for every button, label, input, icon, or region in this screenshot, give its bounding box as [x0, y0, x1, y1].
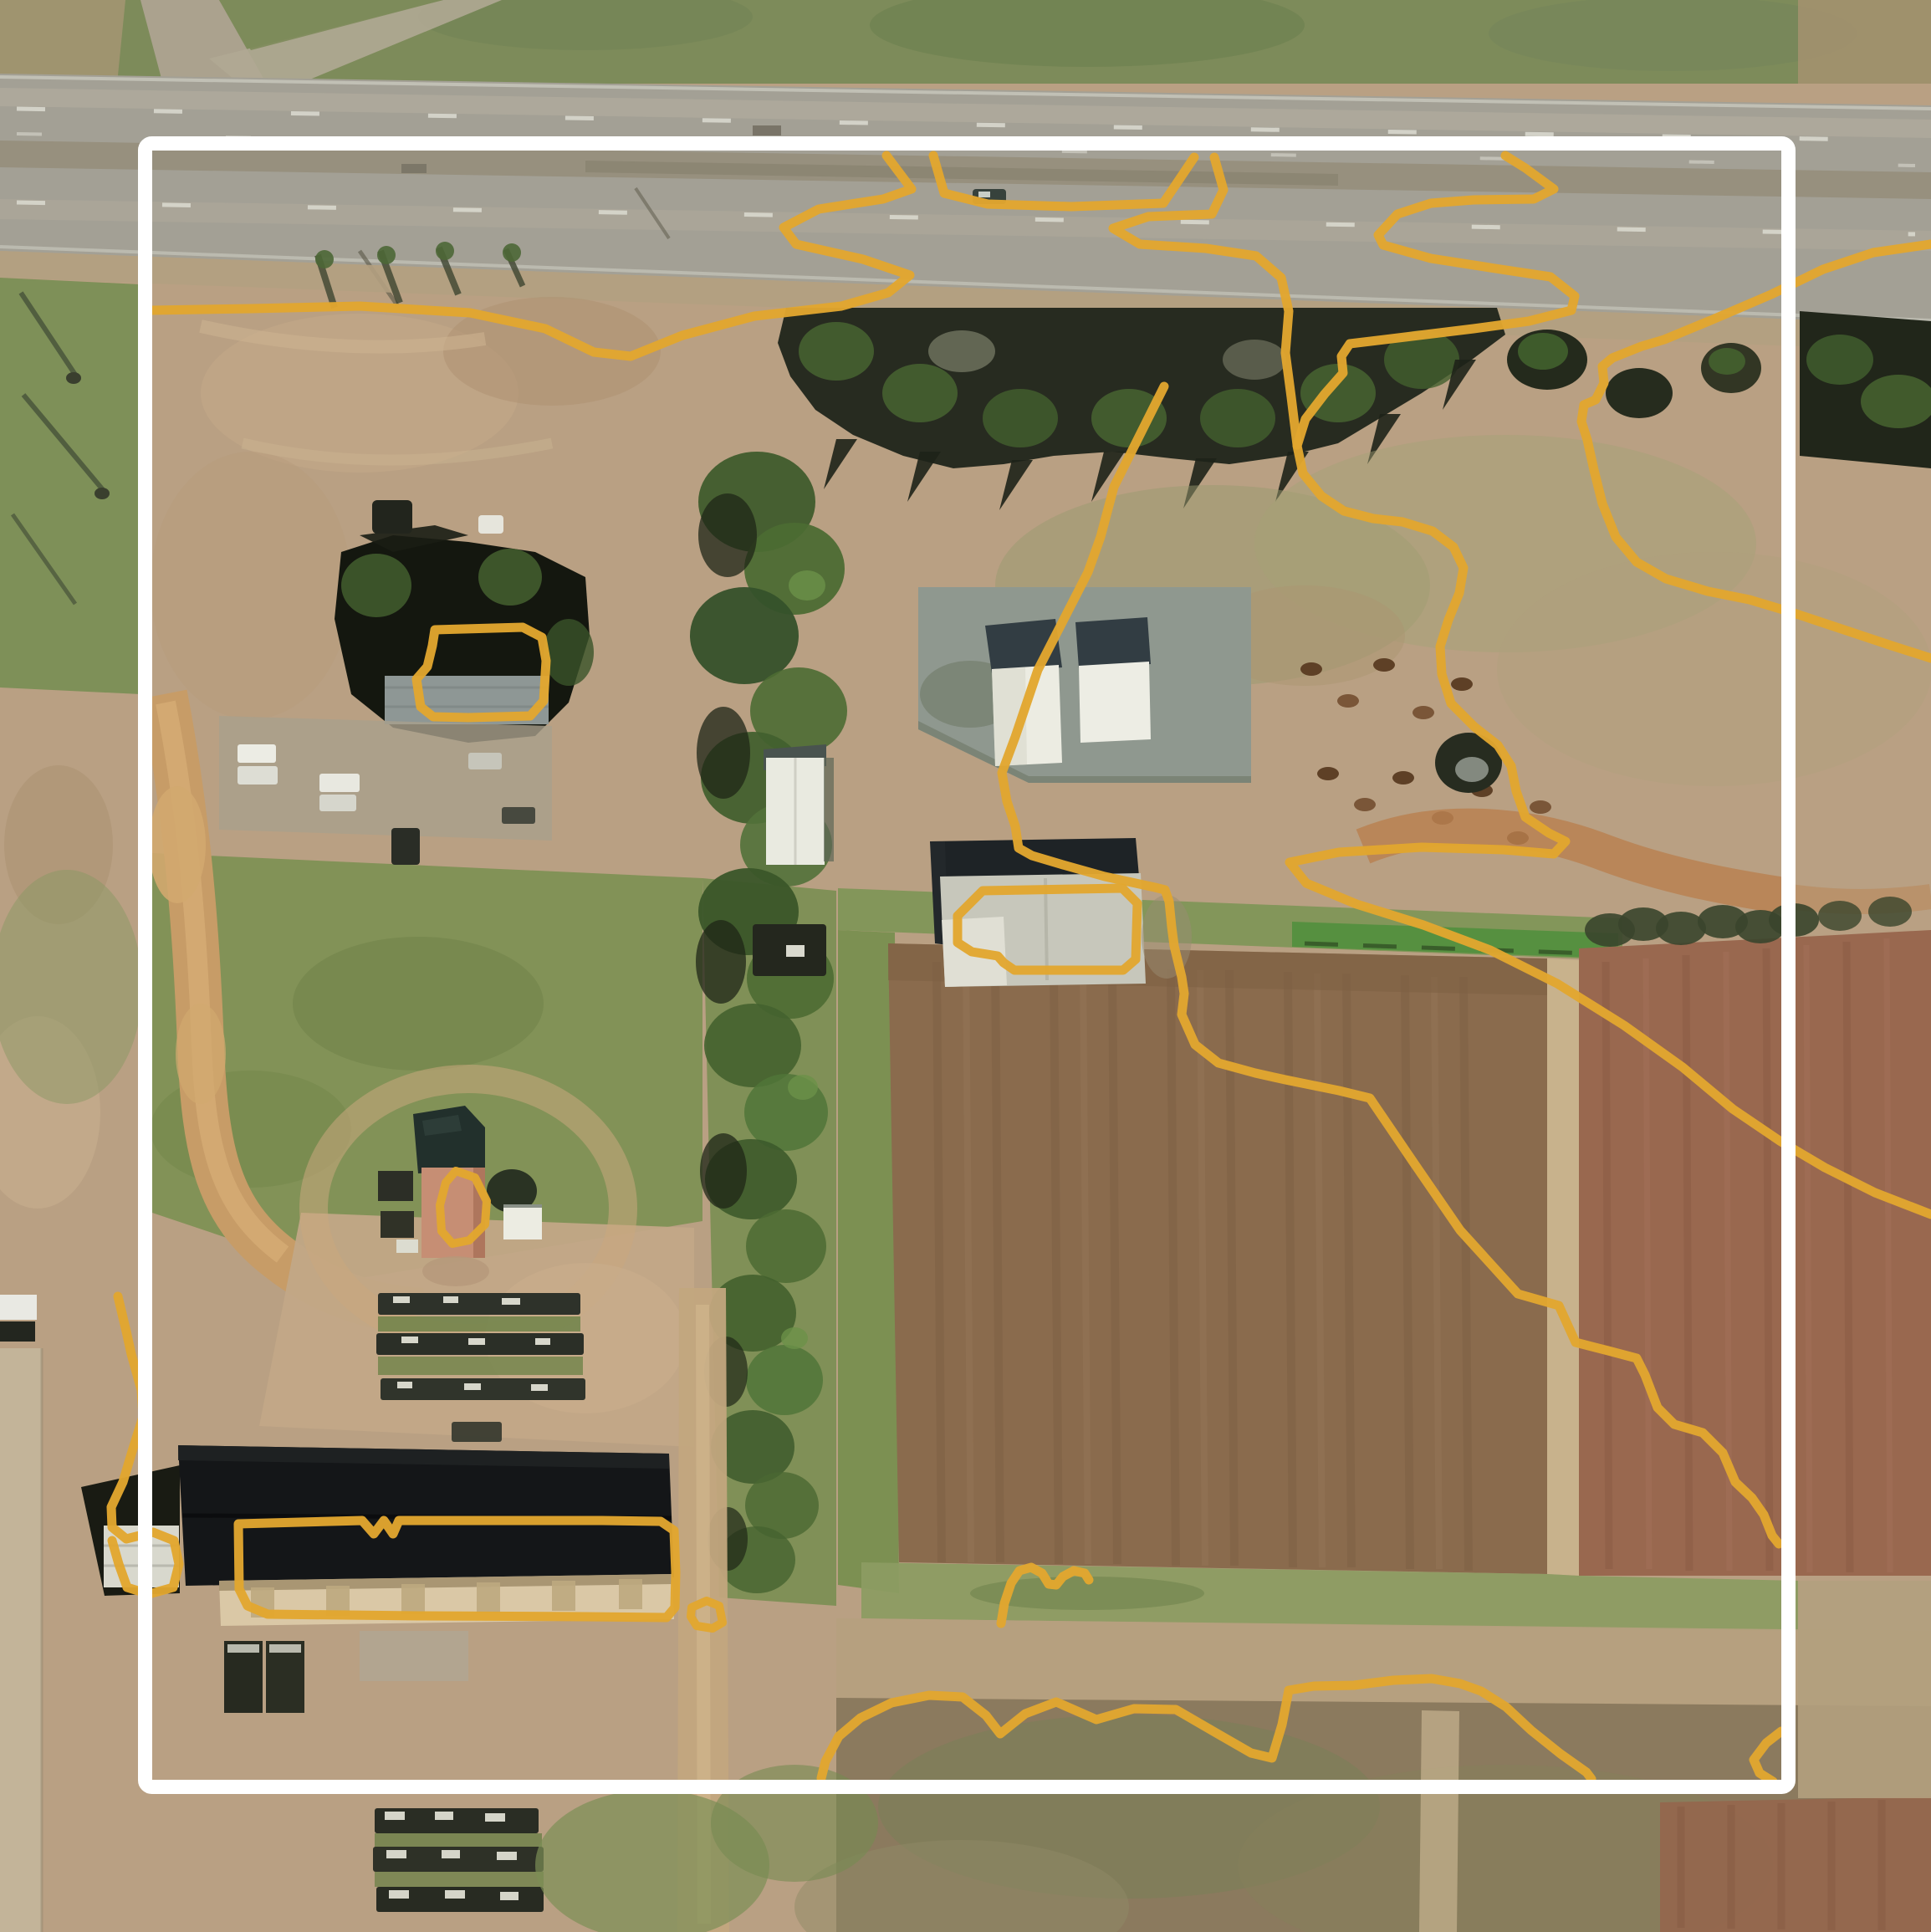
cattle — [1354, 798, 1376, 811]
clay-track — [1790, 897, 1931, 902]
red-field-stripe — [1806, 945, 1810, 1572]
cattle — [1373, 658, 1395, 672]
pole-base — [95, 488, 110, 499]
tree-column — [746, 1209, 826, 1283]
parked-car — [319, 795, 356, 811]
field-stripe — [1464, 977, 1469, 1571]
cattle — [1392, 771, 1414, 785]
white-shed — [503, 1208, 542, 1239]
dirt-spot — [422, 1256, 489, 1286]
tree-column-shadow — [697, 707, 750, 799]
tree-on-building — [478, 549, 542, 606]
tree-column-highlight — [781, 1327, 808, 1349]
parked-car — [238, 766, 278, 785]
dirt-top-left — [0, 0, 125, 84]
trailer-glint — [786, 945, 805, 957]
equipment-glint — [535, 1338, 550, 1345]
tan-right-frame-low — [1798, 1581, 1931, 1798]
shed-white-bits — [396, 1239, 418, 1253]
white-vehicle — [478, 515, 503, 534]
equipment-glint — [485, 1813, 505, 1822]
barn-door — [552, 1581, 575, 1611]
tree-column-shadow — [696, 920, 746, 1004]
dark-car — [372, 500, 412, 534]
field-stripe — [1405, 975, 1410, 1569]
tree-column-shadow — [700, 1133, 747, 1209]
dark-trailer — [0, 1321, 35, 1342]
equipment-glint — [445, 1890, 465, 1899]
bush-row — [1656, 912, 1706, 945]
tree-band-green — [799, 322, 874, 381]
barn-b-roof — [1075, 617, 1151, 668]
field-path-strip — [1547, 958, 1579, 1576]
trailer-glint — [269, 1644, 301, 1653]
barn-door — [477, 1582, 500, 1613]
car-on-highway-glint — [978, 192, 990, 197]
tree-band-green — [983, 389, 1058, 447]
red-field-stripe — [1847, 942, 1850, 1572]
roadside-tree — [503, 243, 521, 262]
tree-on-building — [544, 619, 594, 686]
equipment-row — [378, 1293, 580, 1315]
equipment-glint — [497, 1852, 517, 1860]
tree-column — [746, 1345, 823, 1415]
field-stripe — [1288, 972, 1293, 1567]
cattle — [1317, 767, 1339, 780]
cattle — [1300, 662, 1322, 676]
bush-row — [1818, 901, 1862, 931]
field-stripe — [937, 962, 942, 1562]
roadside-tree — [315, 250, 334, 268]
equipment-green-gap — [378, 1357, 583, 1375]
bush-row — [1868, 897, 1912, 927]
barn-door — [619, 1579, 642, 1609]
equipment-green-gap — [378, 1316, 580, 1331]
tree-block-green — [1806, 335, 1873, 385]
equipment-glint — [385, 1812, 405, 1820]
red-field-stripe — [1606, 962, 1609, 1569]
house-roof — [413, 1106, 485, 1173]
field-stripe — [1229, 970, 1234, 1566]
tree-band-gap — [928, 330, 995, 372]
scattered-tree-green — [1518, 333, 1568, 370]
field-stripe — [1346, 974, 1351, 1567]
equipment-glint — [468, 1338, 485, 1345]
cattle — [1530, 800, 1551, 814]
car-smudge — [401, 164, 427, 173]
plowed-field-brown — [888, 943, 1547, 1574]
equipment-glint — [389, 1890, 409, 1899]
equipment-green-gap — [375, 1833, 542, 1847]
equipment-green-gap — [375, 1872, 544, 1887]
equipment-glint — [442, 1850, 460, 1858]
field-stripe — [1054, 965, 1059, 1564]
shed-left — [378, 1171, 413, 1201]
barn-door — [401, 1584, 425, 1614]
red-field-stripe — [1686, 955, 1689, 1571]
grass-cl-dark — [293, 937, 544, 1071]
equipment-glint — [386, 1850, 406, 1858]
equipment-row — [381, 1378, 585, 1400]
dark-bush-center — [1455, 757, 1489, 782]
equipment-glint — [502, 1298, 520, 1305]
equipment-glint — [393, 1296, 410, 1303]
parked-car-dark — [502, 807, 535, 824]
aerial-imagery-canvas — [0, 0, 1931, 1932]
parked-car — [238, 744, 276, 763]
left-road-strip — [0, 1348, 42, 1932]
scattered-tree — [1606, 368, 1673, 418]
tree-column-shadow — [698, 493, 757, 577]
car-smudge — [753, 125, 781, 135]
cattle — [1337, 694, 1359, 708]
equipment-glint — [464, 1383, 481, 1390]
below-band-tan — [836, 1618, 1931, 1706]
equipment-glint — [531, 1384, 548, 1391]
tree-band-green — [882, 364, 958, 422]
yard-mottle — [151, 452, 351, 719]
tree-column — [690, 587, 799, 684]
bottom-red-field — [1660, 1797, 1931, 1932]
pad-below-barn — [360, 1631, 468, 1681]
cattle — [1412, 706, 1434, 719]
tree-column-highlight — [788, 1075, 818, 1100]
grass-left-margin — [0, 278, 140, 694]
parked-car-dark — [391, 828, 420, 865]
field-stripe — [1171, 969, 1176, 1566]
tree-band-green — [1200, 389, 1275, 447]
pole-base — [66, 372, 81, 384]
equipment-glint — [397, 1382, 412, 1388]
tree-column-highlight — [789, 570, 825, 601]
equipment-glint — [401, 1337, 418, 1343]
field-stripe — [1112, 967, 1117, 1564]
dirt-top-right — [1798, 0, 1931, 84]
red-field-stripe — [1887, 938, 1890, 1572]
white-truck — [0, 1295, 37, 1320]
red-field-stripe — [1766, 948, 1770, 1571]
cattle — [1451, 677, 1473, 691]
red-field-stripe — [1646, 958, 1649, 1569]
equipment-glint — [435, 1812, 453, 1820]
pasture-mottle — [1497, 552, 1931, 786]
equipment-glint — [443, 1296, 458, 1303]
dirt-road-patch — [149, 786, 206, 903]
shed-left — [381, 1211, 414, 1238]
field-stripe — [995, 963, 1000, 1562]
dirt-road-patch — [176, 1004, 226, 1104]
roadside-tree — [436, 242, 454, 260]
tree-band-gap — [1223, 340, 1286, 380]
roadside-tree — [377, 246, 396, 264]
tree-on-building — [341, 554, 411, 617]
map-viewport[interactable] — [0, 0, 1931, 1932]
bottom-field-path — [1419, 1710, 1459, 1932]
equipment-single — [452, 1422, 502, 1442]
trailer-glint — [227, 1644, 259, 1653]
equipment-glint — [500, 1892, 519, 1900]
parked-car — [319, 774, 360, 792]
barn-b-body — [1079, 662, 1151, 743]
white-barn-shadow — [824, 758, 834, 861]
scattered-tree-green — [1709, 348, 1745, 375]
parked-car — [468, 753, 502, 769]
